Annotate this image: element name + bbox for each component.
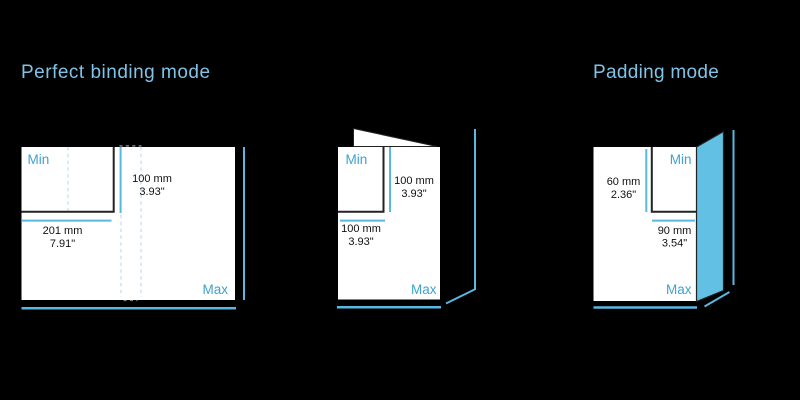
svg-text:3.93": 3.93" — [401, 188, 426, 200]
svg-text:90 mm: 90 mm — [658, 225, 692, 237]
svg-text:201 mm: 201 mm — [43, 225, 83, 237]
svg-text:100 mm: 100 mm — [132, 173, 172, 185]
svg-text:Max: Max — [666, 282, 692, 297]
svg-text:Padding mode: Padding mode — [593, 62, 719, 83]
svg-text:3.93": 3.93" — [139, 186, 164, 198]
svg-text:3.93": 3.93" — [348, 236, 373, 248]
svg-text:60 mm: 60 mm — [607, 176, 641, 188]
svg-text:100 mm: 100 mm — [341, 223, 381, 235]
svg-text:Max: Max — [202, 282, 228, 297]
svg-text:2.36": 2.36" — [611, 189, 636, 201]
svg-text:Perfect binding mode: Perfect binding mode — [21, 62, 211, 83]
svg-text:Max: Max — [411, 282, 437, 297]
svg-text:Min: Min — [346, 152, 368, 167]
svg-text:7.91": 7.91" — [50, 238, 75, 250]
svg-text:100 mm: 100 mm — [394, 175, 434, 187]
svg-text:Min: Min — [28, 152, 50, 167]
svg-text:Min: Min — [670, 152, 692, 167]
svg-text:3.54": 3.54" — [662, 238, 687, 250]
